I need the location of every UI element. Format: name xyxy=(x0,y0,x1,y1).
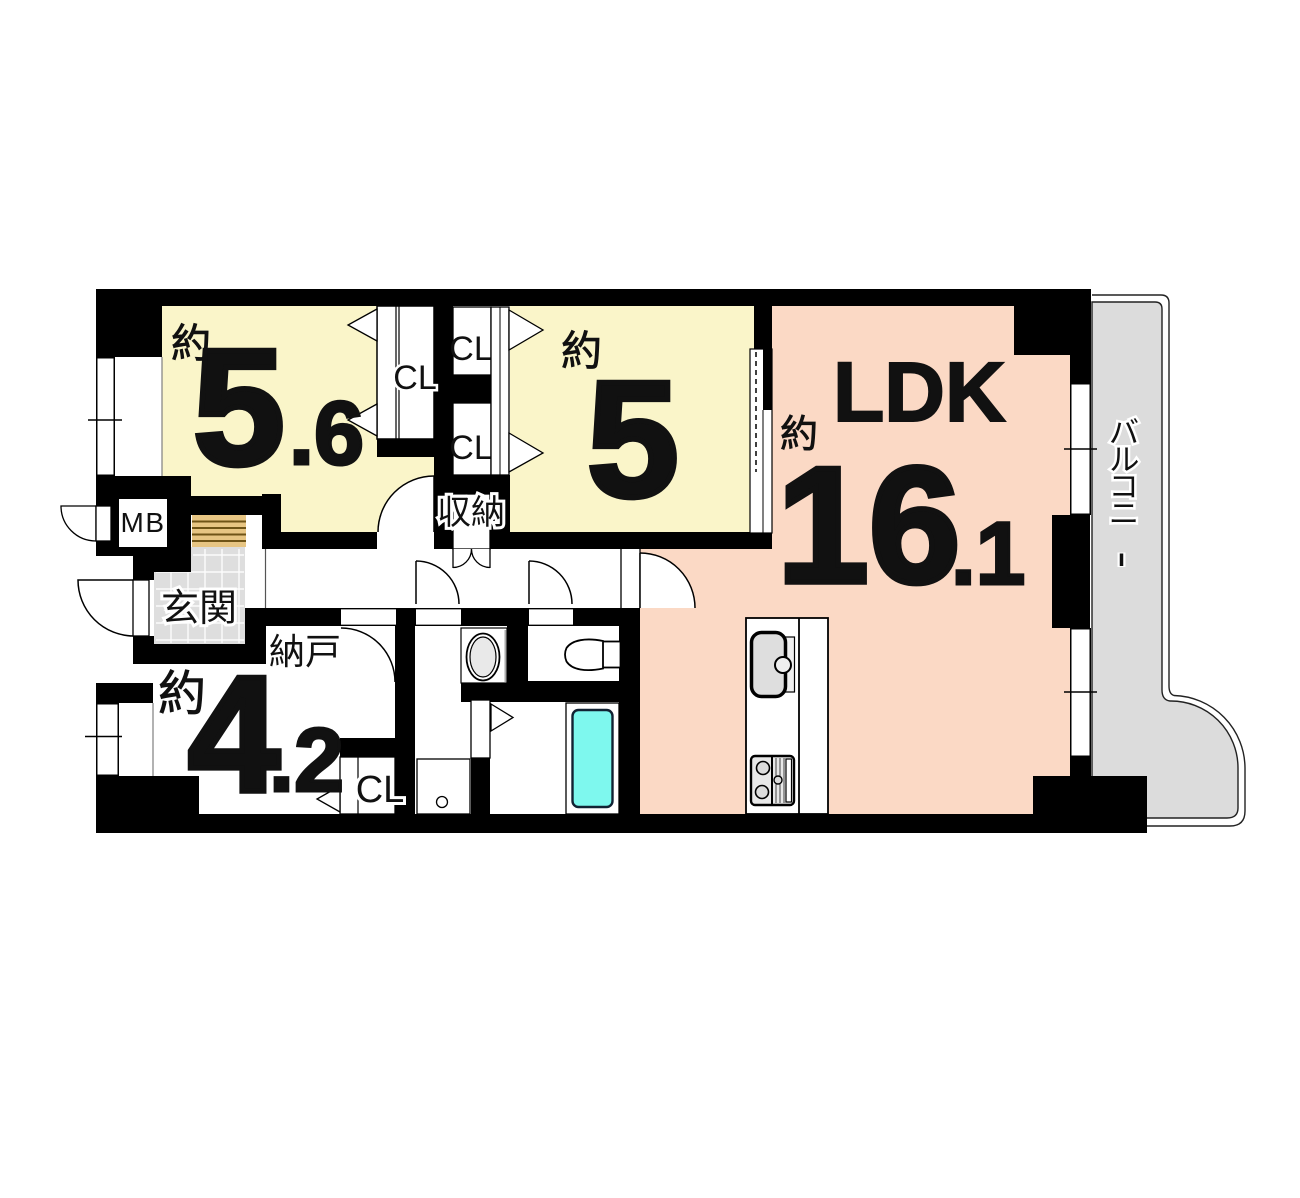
svg-text:玄関: 玄関 xyxy=(161,588,237,630)
svg-text:収納: 収納 xyxy=(437,494,505,532)
svg-text:.2: .2 xyxy=(269,711,344,811)
svg-text:5: 5 xyxy=(193,315,285,499)
svg-text:CL: CL xyxy=(449,330,492,368)
svg-text:4: 4 xyxy=(188,642,280,826)
svg-text:MB: MB xyxy=(121,507,166,538)
svg-text:CL: CL xyxy=(356,769,405,811)
svg-text:バルコニ: バルコニ xyxy=(1104,416,1139,524)
svg-text:CL: CL xyxy=(393,359,436,397)
svg-text:.1: .1 xyxy=(951,503,1025,603)
svg-text:.6: .6 xyxy=(289,384,364,484)
svg-text:CL: CL xyxy=(449,429,492,467)
svg-text:納戸: 納戸 xyxy=(269,631,341,672)
svg-text:16: 16 xyxy=(777,433,961,617)
svg-text:5: 5 xyxy=(587,347,679,531)
svg-text:LDK: LDK xyxy=(833,345,1006,439)
